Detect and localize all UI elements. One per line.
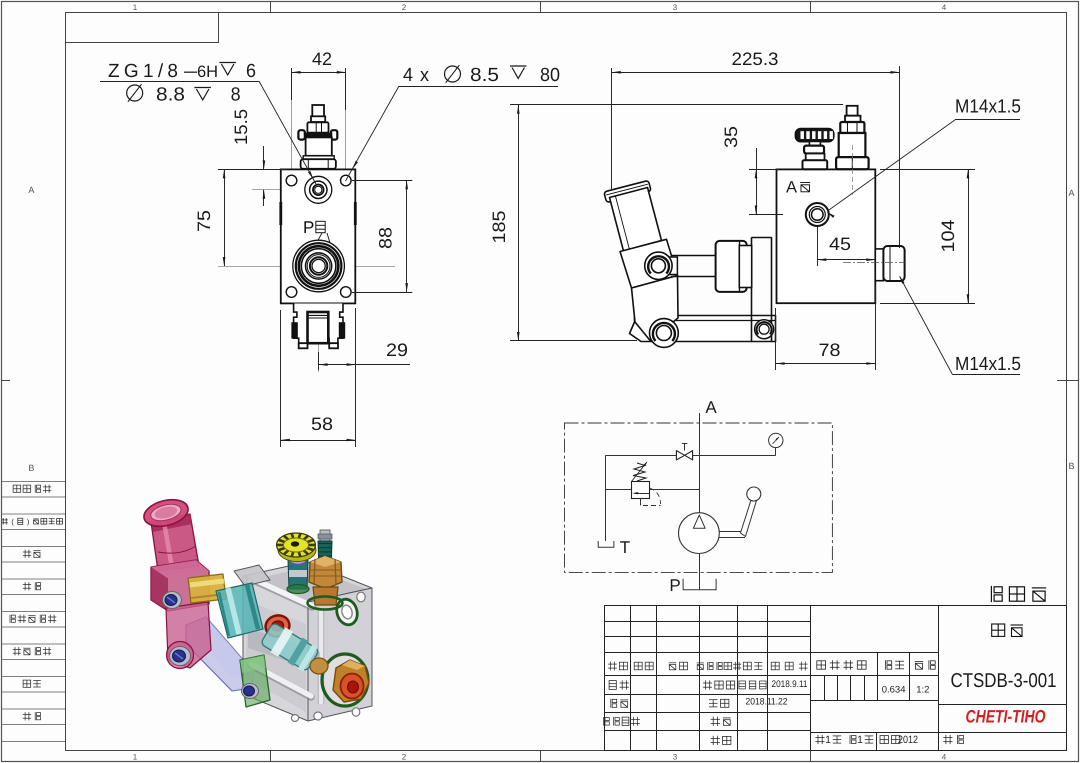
svg-text:45: 45 [829,234,851,254]
svg-text:1: 1 [857,734,863,746]
svg-text:8.5: 8.5 [470,65,499,86]
svg-text:M14x1.5: M14x1.5 [955,97,1021,118]
svg-text:35: 35 [721,126,741,148]
svg-text:4: 4 [942,3,947,12]
svg-text:1:2: 1:2 [916,685,929,696]
svg-text:B: B [1068,461,1074,471]
svg-text:8.8: 8.8 [156,85,185,106]
svg-text:T: T [620,538,630,557]
svg-text:2: 2 [402,3,407,12]
svg-text:8: 8 [231,85,241,106]
svg-text:P: P [669,576,680,595]
svg-text:A: A [705,398,717,417]
svg-text:15.5: 15.5 [231,109,251,145]
svg-text:42: 42 [312,49,332,69]
svg-text:4: 4 [942,753,947,762]
svg-text:75: 75 [194,210,214,232]
svg-text:A: A [28,185,34,195]
svg-text:ZG1/8: ZG1/8 [108,61,178,82]
svg-text:6H: 6H [197,63,218,81]
svg-text:—: — [184,61,197,82]
svg-text:3: 3 [673,3,678,12]
svg-text:80: 80 [540,65,560,86]
svg-text:x: x [420,65,429,86]
svg-text:2: 2 [402,753,407,762]
svg-text:6: 6 [246,61,256,82]
svg-text:1: 1 [133,3,138,12]
svg-text:1: 1 [133,753,138,762]
svg-text:3: 3 [673,753,678,762]
svg-text:CHETI-TIHO: CHETI-TIHO [966,707,1046,727]
svg-text:225.3: 225.3 [732,49,779,69]
svg-text:104: 104 [938,220,958,253]
svg-text:4: 4 [403,65,413,86]
svg-text:CTSDB-3-001: CTSDB-3-001 [951,670,1057,692]
svg-text:0.634: 0.634 [882,685,906,696]
svg-text:M14x1.5: M14x1.5 [955,354,1021,375]
svg-text:78: 78 [819,340,841,360]
svg-text:29: 29 [386,340,408,360]
svg-text:1: 1 [825,734,831,746]
svg-text:A: A [1068,188,1074,198]
svg-text:58: 58 [311,414,333,434]
svg-text:185: 185 [489,211,509,244]
svg-text:P: P [303,218,314,237]
svg-text:88: 88 [376,227,396,249]
svg-text:2012: 2012 [898,734,918,746]
svg-text:A: A [786,179,797,197]
svg-text:2018.9.11: 2018.9.11 [772,679,808,690]
svg-text:B: B [28,463,34,473]
svg-text:): ) [27,518,29,526]
svg-text:2018.11.22: 2018.11.22 [746,697,788,708]
